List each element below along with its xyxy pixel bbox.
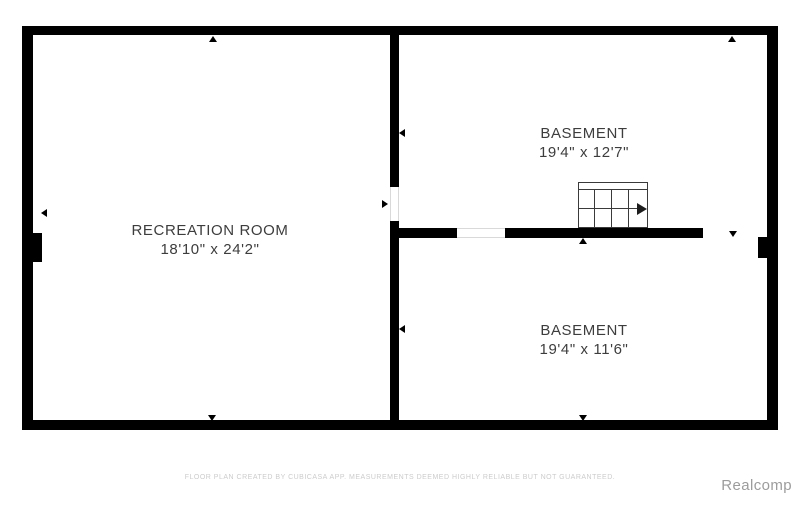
wall-divider-upper [390,35,399,187]
realcomp-watermark: Realcomp [721,477,792,494]
room-name: BASEMENT [540,321,629,340]
passage-opening [457,228,505,238]
marker-up-icon [728,36,736,42]
room-label-basement-lower: BASEMENT 19'4" x 11'6" [540,321,629,359]
marker-left-icon [41,209,47,217]
marker-left-icon [399,129,405,137]
wall-middle-right-segment [505,228,703,238]
room-label-recreation-room: RECREATION ROOM 18'10" x 24'2" [131,221,288,259]
room-name: RECREATION ROOM [131,221,288,240]
room-label-basement-upper: BASEMENT 19'4" x 12'7" [539,124,629,162]
wall-middle-left-segment [398,228,457,238]
disclaimer-text: FLOOR PLAN CREATED BY CUBICASA APP. MEAS… [0,474,800,481]
room-dimensions: 19'4" x 12'7" [539,143,629,162]
marker-down-icon [579,415,587,421]
marker-left-icon [399,325,405,333]
stair-direction-line [579,208,640,209]
door-opening [390,187,399,221]
room-dimensions: 18'10" x 24'2" [131,240,288,259]
marker-right-icon [382,200,388,208]
wall-stub-left [32,233,42,262]
marker-up-icon [579,238,587,244]
room-name: BASEMENT [539,124,629,143]
marker-down-icon [729,231,737,237]
stair-landing-line [579,189,647,190]
marker-up-icon [209,36,217,42]
staircase [578,182,648,228]
wall-divider-lower [390,221,399,421]
stair-direction-arrow-icon [637,203,647,215]
room-dimensions: 19'4" x 11'6" [540,340,629,359]
marker-down-icon [208,415,216,421]
floorplan-canvas: RECREATION ROOM 18'10" x 24'2" BASEMENT … [0,0,800,505]
wall-stub-right [758,237,768,258]
